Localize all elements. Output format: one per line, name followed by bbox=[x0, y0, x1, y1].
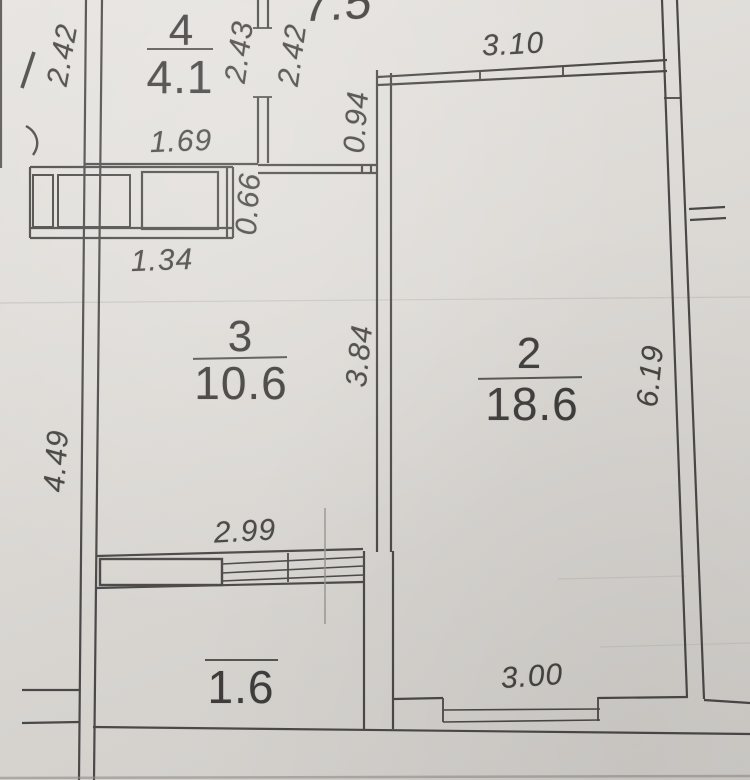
dimension-tick bbox=[22, 52, 34, 88]
wall-line bbox=[704, 700, 750, 703]
dim-left-wall-height: 4.49 bbox=[38, 429, 76, 494]
wall-line bbox=[394, 698, 443, 699]
wall-line bbox=[378, 71, 667, 85]
room3-number-label: 3 bbox=[228, 312, 252, 362]
window-line bbox=[222, 575, 363, 581]
crease-line bbox=[558, 576, 686, 579]
room2-area-label: 18.6 bbox=[485, 377, 579, 431]
room2-number-label: 2 bbox=[517, 329, 541, 379]
wall-line bbox=[79, 0, 86, 780]
room2-walls bbox=[377, 0, 726, 699]
left-wall bbox=[79, 0, 102, 780]
photo-edge-line bbox=[0, 776, 750, 778]
wall-line bbox=[97, 549, 363, 556]
wall-tick bbox=[22, 722, 80, 723]
window-line bbox=[443, 709, 600, 710]
dim-room2-top: 3.10 bbox=[481, 26, 545, 63]
balcony-area-label: 1.6 bbox=[208, 660, 275, 714]
wall-line bbox=[677, 0, 704, 699]
closet-cell bbox=[33, 175, 53, 227]
dim-hall-width: 0.94 bbox=[338, 90, 376, 155]
balcony-door-leaf bbox=[100, 559, 222, 585]
wall-tick bbox=[689, 207, 725, 209]
left-edge-marks bbox=[1, 0, 80, 723]
wall-line bbox=[598, 697, 688, 698]
wall-line bbox=[94, 0, 102, 780]
wall-line bbox=[378, 60, 667, 77]
wall-line bbox=[93, 727, 750, 734]
dim-room2-height: 6.19 bbox=[631, 343, 671, 409]
closet-cell bbox=[142, 172, 218, 229]
room2-bottom-window bbox=[394, 697, 750, 722]
window-line bbox=[222, 557, 363, 564]
room3-area-label: 10.6 bbox=[194, 356, 288, 410]
dim-room4-bottom: 1.69 bbox=[149, 124, 213, 160]
arc-mark bbox=[26, 126, 37, 155]
window-line bbox=[222, 566, 363, 573]
wall-tick bbox=[690, 218, 726, 220]
balcony-walls bbox=[93, 551, 750, 734]
crease-line bbox=[600, 643, 750, 647]
floor-plan-photo: 7.5 4 4.1 3 10.6 2 18.6 1.6 2.42 2.43 2.… bbox=[0, 0, 750, 780]
room4-area-label: 4.1 bbox=[147, 50, 214, 104]
closet-block bbox=[30, 167, 233, 238]
dim-closet-width: 1.34 bbox=[130, 243, 194, 279]
dim-room3-height: 3.84 bbox=[340, 323, 380, 389]
room3-top-wall bbox=[258, 165, 377, 173]
crease-line bbox=[0, 297, 750, 303]
closet-cell bbox=[58, 175, 130, 227]
dim-room2-width: 3.00 bbox=[500, 658, 565, 696]
window-line bbox=[443, 720, 600, 722]
dim-closet-depth: 0.66 bbox=[230, 172, 268, 237]
dim-room3-width: 2.99 bbox=[213, 513, 277, 550]
